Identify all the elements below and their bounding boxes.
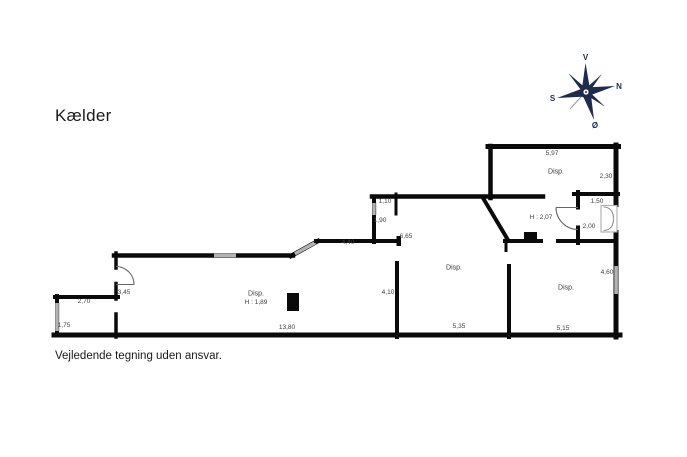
room-label: Disp.: [446, 264, 462, 271]
window-icon: [214, 254, 236, 258]
wall-stair-diagonal: [483, 198, 508, 240]
window-icon: [372, 203, 375, 215]
dimension-label: 1,90: [374, 217, 387, 224]
window-icon: [614, 266, 618, 294]
dimension-label: 3,45: [118, 289, 131, 296]
chimney-icon: [287, 293, 299, 311]
dimension-label: 2,00: [583, 224, 596, 231]
compass-label-north: N: [616, 82, 622, 91]
compass-rose: V N S Ø: [544, 50, 628, 134]
dimension-label: 4,10: [382, 290, 395, 297]
chimneys-group: [287, 232, 537, 311]
floorplan-page: V N S Ø Kælder Vejledende tegning uden a…: [0, 0, 687, 457]
dimension-label: 13,80: [279, 325, 295, 332]
dimension-label: 4,40: [342, 239, 355, 246]
dimension-label: 4,60: [601, 269, 614, 276]
compass-label-south: S: [550, 94, 556, 103]
dimension-label: 1,75: [58, 323, 71, 330]
dimension-label: 1,50: [591, 199, 604, 206]
compass-needles: [557, 63, 615, 120]
dimension-label: 2,70: [78, 299, 91, 306]
dimension-label: 6,65: [400, 233, 413, 240]
dimension-label: 1,10: [379, 198, 392, 205]
compass-label-west: V: [583, 53, 589, 62]
room-label: Disp.: [558, 284, 574, 291]
dimension-label: 5,35: [453, 324, 466, 331]
chimney-icon: [524, 232, 537, 242]
ceiling-height-label: H : 2,07: [530, 214, 553, 221]
compass-label-east: Ø: [592, 121, 598, 130]
ceiling-height-label: H : 1,89: [245, 299, 268, 306]
page-title: Kælder: [55, 106, 112, 126]
door-arc-icon: [116, 267, 134, 285]
windows-group: [55, 203, 618, 331]
dimension-label: 5,97: [546, 151, 559, 158]
window-icon: [296, 243, 314, 253]
dimension-label: 5,15: [557, 326, 570, 333]
disclaimer-text: Vejledende tegning uden ansvar.: [55, 350, 222, 362]
compass-hub-dot: [585, 91, 587, 93]
door-arc-icon: [556, 208, 578, 230]
dimension-label: 2,30: [600, 173, 613, 180]
room-label: Disp.: [248, 291, 264, 298]
room-label: Disp.: [548, 169, 564, 176]
double-door-icon: [601, 206, 617, 233]
